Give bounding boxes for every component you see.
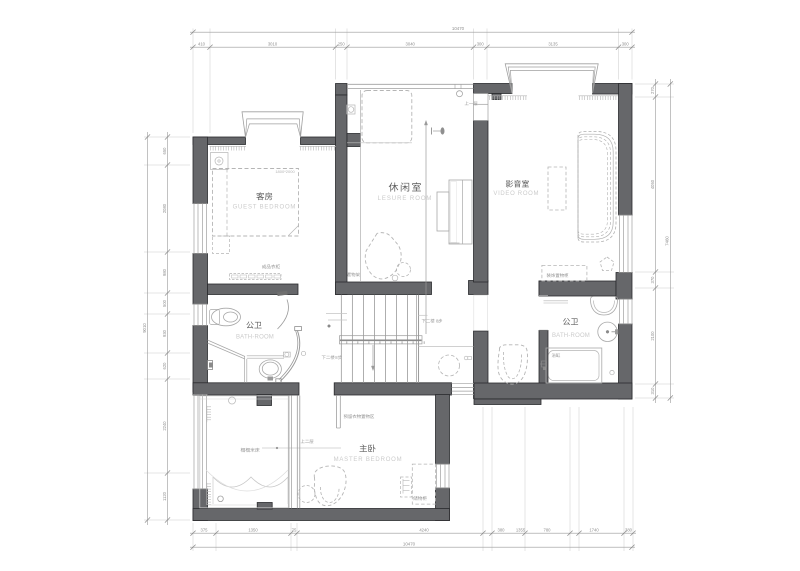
svg-text:9010: 9010 [142, 323, 147, 333]
svg-text:300: 300 [477, 41, 485, 46]
svg-text:GUEST BEDROOM: GUEST BEDROOM [233, 205, 297, 211]
svg-text:VIDEO ROOM: VIDEO ROOM [493, 191, 539, 197]
svg-text:4050: 4050 [650, 179, 655, 189]
svg-text:10470: 10470 [452, 26, 465, 31]
svg-text:3040: 3040 [406, 41, 416, 46]
svg-text:1740: 1740 [589, 527, 599, 532]
svg-text:300: 300 [622, 41, 630, 46]
svg-text:MASTER BEDROOM: MASTER BEDROOM [334, 457, 403, 463]
svg-text:2240: 2240 [162, 421, 167, 431]
svg-text:370: 370 [650, 276, 655, 284]
svg-text:930: 930 [162, 329, 167, 337]
svg-text:500: 500 [162, 299, 167, 307]
svg-text:1120: 1120 [162, 491, 167, 501]
svg-text:LESURE ROOM: LESURE ROOM [378, 196, 433, 202]
svg-text:250: 250 [338, 41, 346, 46]
svg-text:1355: 1355 [516, 527, 526, 532]
svg-text:BATH-ROOM: BATH-ROOM [236, 334, 274, 340]
svg-text:3010: 3010 [268, 41, 278, 46]
svg-text:7460: 7460 [665, 236, 670, 246]
svg-text:BATH-ROOM: BATH-ROOM [552, 333, 590, 339]
svg-text:270: 270 [650, 86, 655, 94]
svg-text:375: 375 [201, 527, 209, 532]
svg-text:310: 310 [650, 387, 655, 395]
svg-text:780: 780 [544, 527, 552, 532]
svg-text:380: 380 [498, 527, 506, 532]
svg-text:3135: 3135 [548, 41, 558, 46]
svg-text:410: 410 [198, 41, 206, 46]
svg-text:650: 650 [162, 147, 167, 155]
svg-text:1800*2000: 1800*2000 [275, 169, 295, 174]
svg-text:620: 620 [162, 362, 167, 370]
svg-text:2080: 2080 [162, 203, 167, 213]
svg-text:980: 980 [162, 268, 167, 276]
svg-text:4240: 4240 [419, 527, 429, 532]
svg-text:75: 75 [292, 527, 297, 532]
svg-text:10470: 10470 [403, 541, 416, 546]
svg-text:2100: 2100 [650, 331, 655, 341]
svg-text:1350: 1350 [248, 527, 258, 532]
svg-text:380: 380 [625, 527, 633, 532]
